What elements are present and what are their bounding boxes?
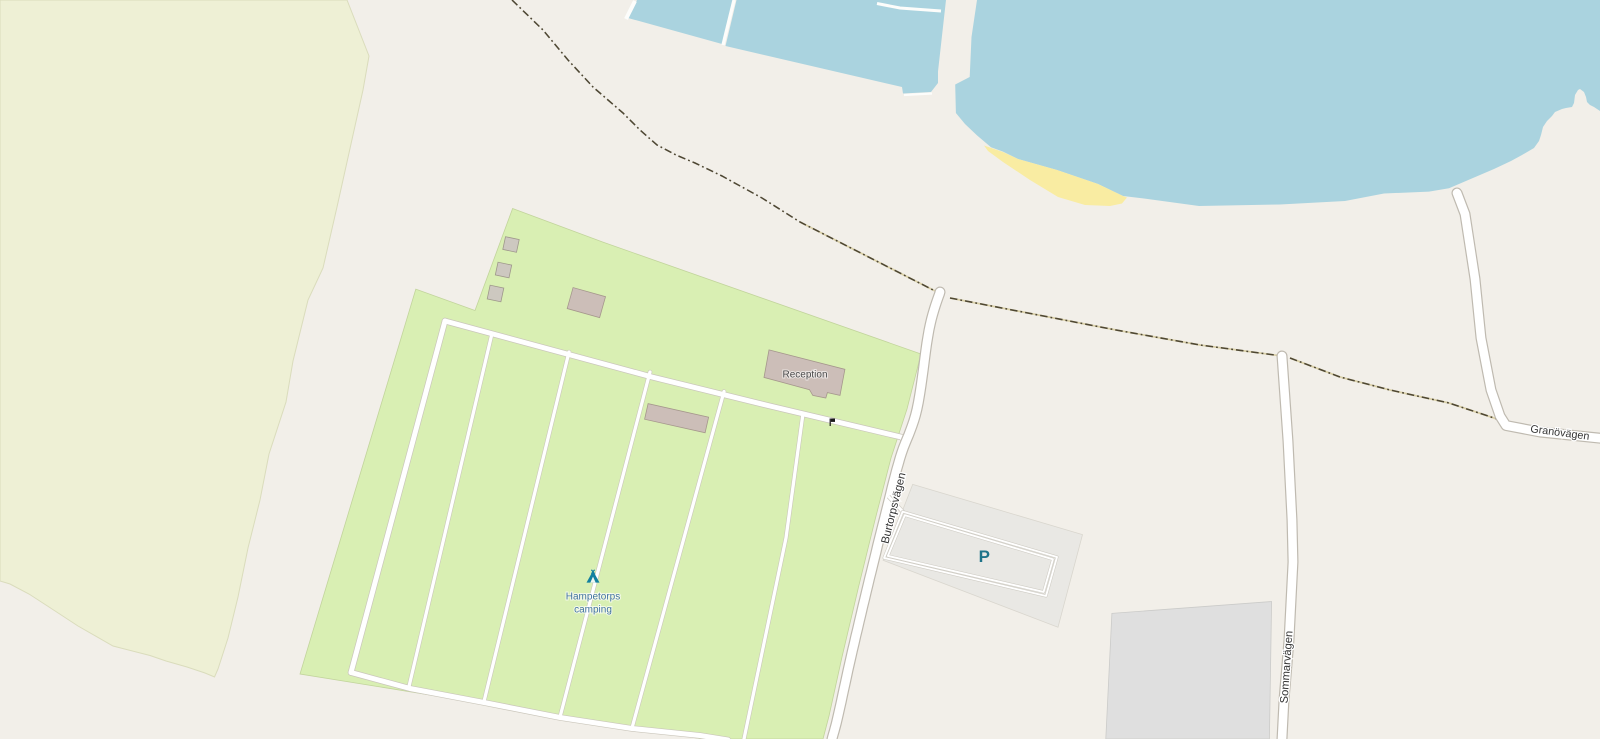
svg-text:Reception: Reception — [782, 370, 827, 381]
svg-text:P: P — [979, 547, 990, 566]
svg-text:camping: camping — [574, 605, 612, 616]
svg-text:Hampetorps: Hampetorps — [566, 592, 620, 603]
